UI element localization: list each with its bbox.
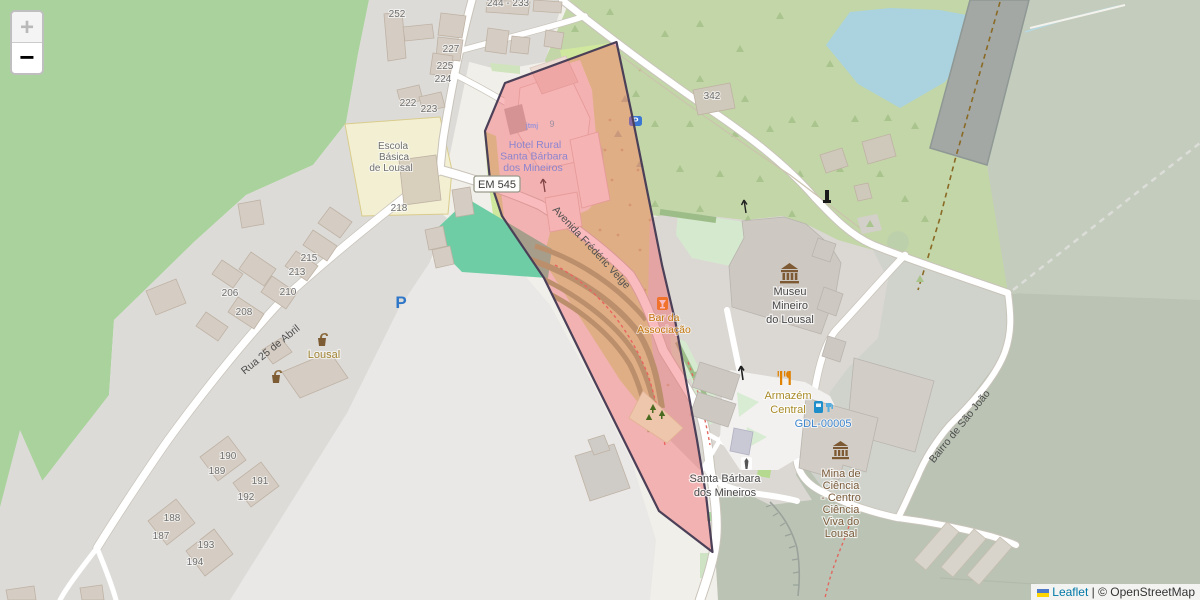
svg-text:Lousal: Lousal [308, 349, 340, 361]
svg-text:9: 9 [549, 119, 554, 129]
svg-text:192: 192 [238, 492, 255, 503]
svg-text:dos Mineiros: dos Mineiros [503, 162, 563, 174]
svg-text:206: 206 [222, 288, 239, 299]
svg-text:Lousal: Lousal [825, 528, 857, 540]
svg-text:Santa Bárbara: Santa Bárbara [500, 151, 568, 163]
svg-text:Ciência: Ciência [823, 480, 861, 492]
svg-text:EM 545: EM 545 [478, 179, 516, 191]
svg-text:de Lousal: de Lousal [369, 163, 412, 174]
svg-text:191: 191 [252, 476, 269, 487]
svg-text:do Lousal: do Lousal [766, 314, 814, 326]
svg-text:187: 187 [153, 531, 170, 542]
svg-text:Viva do: Viva do [823, 516, 860, 528]
svg-text:193: 193 [198, 540, 215, 551]
svg-text:Associação: Associação [637, 324, 691, 336]
svg-text:Mineiro: Mineiro [772, 300, 808, 312]
svg-text:218: 218 [391, 203, 408, 214]
svg-text:dos Mineiros: dos Mineiros [694, 487, 757, 499]
svg-text:342: 342 [704, 91, 721, 102]
svg-text:225: 225 [437, 61, 454, 72]
svg-text:210: 210 [280, 287, 297, 298]
svg-text:224: 224 [435, 74, 452, 85]
svg-text:Santa Bárbara: Santa Bárbara [690, 473, 762, 485]
svg-text:244 - 233: 244 - 233 [487, 0, 530, 9]
svg-text:188: 188 [164, 513, 181, 524]
svg-text:Escola: Escola [378, 141, 408, 152]
svg-text:GDL-00005: GDL-00005 [795, 418, 852, 430]
svg-text:Hotel Rural: Hotel Rural [509, 139, 562, 151]
svg-text:208: 208 [236, 307, 253, 318]
svg-text:215: 215 [301, 253, 318, 264]
svg-text:Ciência: Ciência [823, 504, 861, 516]
svg-text:Museu: Museu [773, 286, 806, 298]
svg-text:Armazém: Armazém [764, 390, 811, 402]
svg-text:223: 223 [421, 104, 438, 115]
svg-text:- Centro: - Centro [821, 492, 861, 504]
svg-text:227: 227 [443, 44, 460, 55]
svg-text:P: P [395, 293, 406, 312]
svg-text:213: 213 [289, 267, 306, 278]
svg-text:jtmj: jtmj [525, 123, 539, 130]
svg-text:189: 189 [209, 466, 226, 477]
svg-text:222: 222 [400, 98, 417, 109]
svg-text:194: 194 [187, 557, 204, 568]
svg-text:252: 252 [389, 9, 406, 20]
svg-text:Mina de: Mina de [821, 468, 860, 480]
svg-text:Central: Central [770, 404, 805, 416]
svg-text:Bar da: Bar da [649, 312, 680, 324]
svg-text:190: 190 [220, 451, 237, 462]
svg-text:Básica: Básica [379, 152, 409, 163]
